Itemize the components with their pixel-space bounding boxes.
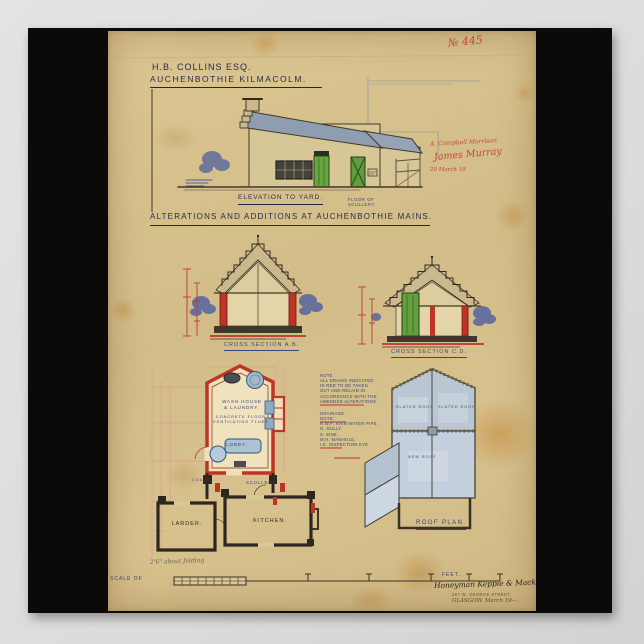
tub xyxy=(210,446,226,462)
blue-shrub-scribble xyxy=(199,151,230,173)
side-closets xyxy=(273,397,284,431)
foundation-band xyxy=(214,326,302,333)
room-label-larder: LARDER. xyxy=(164,521,210,528)
notice-plaque xyxy=(368,169,377,176)
foundation-band xyxy=(387,336,477,342)
scale-unit-label: FEET. xyxy=(442,572,461,578)
client-address: AUCHENBOTHIE KILMACOLM. xyxy=(150,74,322,88)
architect-address: 257 W. GEORGE STREET. xyxy=(452,592,511,597)
floor-plan-drawing xyxy=(152,366,318,561)
wall-piers xyxy=(158,475,315,546)
room-label-lobby: LOBBY. xyxy=(226,442,248,448)
existing-walls-black xyxy=(158,473,318,550)
room-label-kitchen: KITCHEN. xyxy=(240,518,300,525)
room-label-floor-notes: CONCRETE FLOOR. VENTILATING FLUES. xyxy=(212,415,272,425)
cross-section-cd-drawing xyxy=(358,256,496,347)
cross-section-ab-drawing xyxy=(183,235,323,339)
chimney xyxy=(246,99,259,111)
roof-plan-drawing xyxy=(365,369,475,528)
door-braced xyxy=(351,157,365,187)
paper-crease xyxy=(108,55,536,58)
section-door-green xyxy=(402,293,419,336)
drawing-sheet: H.B. COLLINS ESQ. AUCHENBOTHIE KILMACOLM… xyxy=(108,31,536,611)
elevation-wing-wall xyxy=(380,147,420,187)
red-dimension-lines xyxy=(183,269,200,336)
room-label-scullery: SCULLERY. xyxy=(246,480,278,485)
red-annotation-date: 20 March 19 xyxy=(430,167,466,174)
client-name: H.B. COLLINS ESQ. xyxy=(152,62,252,73)
sheet-title: ALTERATIONS AND ADDITIONS AT AUCHENBOTHI… xyxy=(150,212,430,226)
wash-tub xyxy=(247,372,264,389)
door-panelled xyxy=(314,151,329,187)
room-label-wash-house: WASH HOUSE & LAUNDRY. xyxy=(214,399,270,410)
wall-section-red xyxy=(462,306,468,336)
post-section-red xyxy=(430,306,435,336)
section-ab-caption: CROSS SECTION A.B. xyxy=(224,342,299,351)
elevation-caption: ELEVATION TO YARD. xyxy=(238,194,323,205)
room-label-coals: COALS. xyxy=(192,478,212,483)
wall-section-red xyxy=(220,293,227,326)
poster-photo: { "poster": { "drawing_no": "№ 445", "cl… xyxy=(0,0,644,644)
section-cd-caption: CROSS SECTION C.D. xyxy=(391,349,467,358)
tiny-blue-note-lines xyxy=(186,180,212,186)
roof-chimney xyxy=(428,427,437,435)
window xyxy=(276,161,312,179)
scale-label: SCALE OF xyxy=(110,576,143,582)
roof-plan-caption: ROOF PLAN. xyxy=(416,520,466,530)
architect-city-date: GLASGOW. March 19—. xyxy=(452,598,519,605)
drainage-key-note: DRAINAGE. NOTE: R.W.P. RAIN WATER PIPE. … xyxy=(320,411,378,447)
roof-label-1: SLATED ROOF xyxy=(396,405,434,410)
boiler xyxy=(224,373,240,383)
elevation-sub-caption: FLOOR OF SCULLERY. xyxy=(348,197,376,208)
roof-label-2: SLATED ROOF xyxy=(438,405,476,410)
roof-label-3: NEW ROOF xyxy=(408,455,437,460)
drain-note: NOTE. ALL DRAINS INDICATED IN RED TO BE … xyxy=(320,373,378,404)
wall-section-red xyxy=(289,293,296,326)
